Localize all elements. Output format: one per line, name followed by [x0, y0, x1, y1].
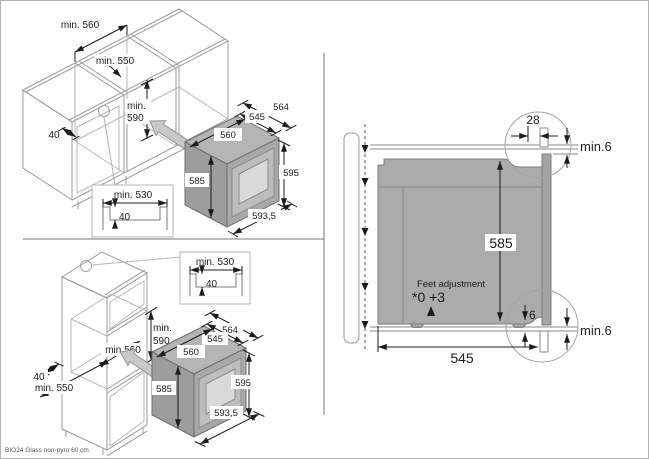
wall: [344, 133, 359, 343]
dim-oven-width: 560: [183, 347, 199, 358]
dim-niche-height-2: 590: [127, 113, 144, 124]
tall-cabinet-section: min. 590 min.560 40 min. 550 min. 530: [31, 252, 264, 456]
leader-line: [92, 257, 180, 265]
cabinet-front-rail-top: [540, 128, 548, 147]
dim-oven-total-depth: 564: [273, 102, 289, 113]
airflow-arrow-icon: [362, 283, 369, 291]
airflow-arrow-icon: [362, 178, 369, 186]
detail-recess-depth: 40: [206, 279, 218, 290]
dim-oven-body-depth: 545: [249, 112, 265, 123]
dim-oven-width: 560: [220, 130, 236, 141]
dim-bottom-clearance: min.6: [580, 323, 612, 338]
installation-manual-page: min. 560 min. 550 min. 590 40 min. 530: [0, 0, 649, 459]
airflow-arrow-icon: [362, 321, 369, 329]
feet-adjustment-values: *0 +3: [412, 289, 445, 305]
installation-diagram: min. 560 min. 550 min. 590 40 min. 530: [0, 0, 649, 459]
dim-top-clearance: min.6: [580, 139, 612, 154]
detail-recess-width: min. 530: [114, 190, 153, 201]
dim-front-overlap-group: 28: [511, 113, 558, 142]
bottom-shelf: [370, 327, 578, 331]
recess-detail-inset: min. 530 40: [92, 185, 173, 237]
cabinet-front-rail-bottom: [540, 331, 548, 352]
dim-front-rail: 40: [48, 130, 60, 141]
oven-front-frame: [542, 154, 551, 325]
leader-circle: [99, 106, 110, 117]
side-view-section: 28 min.6 585 Feet adjustment *0 +3 6: [344, 112, 612, 366]
detail-recess-depth: 40: [119, 212, 131, 223]
dim-oven-depth: 545: [450, 350, 474, 366]
dim-oven-height-side: 585: [189, 176, 205, 187]
dim-niche-depth: min. 550: [96, 56, 135, 67]
dim-niche-depth: min. 550: [35, 383, 74, 394]
dim-niche-height-1: min.: [127, 101, 146, 112]
dim-oven-height: 585: [489, 235, 513, 251]
dim-oven-body-depth: 545: [207, 334, 223, 345]
dim-oven-height-front: 595: [283, 168, 299, 179]
recess-detail-inset: min. 530 40: [180, 252, 250, 304]
dim-niche-width: min. 560: [61, 20, 100, 31]
dim-oven-height-front: 595: [235, 378, 251, 389]
dim-oven-depth-group: 545: [378, 326, 538, 366]
insertion-arrow-icon: [150, 121, 190, 149]
dim-oven-height-side: 585: [156, 384, 172, 395]
dim-top-clearance-group: min.6: [567, 128, 612, 168]
dim-front-overlap: 28: [526, 113, 540, 127]
airflow-arrow-icon: [362, 228, 369, 236]
dim-oven-width-front: 593,5: [214, 408, 238, 419]
airflow-arrow-icon: [362, 145, 369, 153]
leader-line: [104, 117, 115, 185]
dim-oven-width-front: 593,5: [252, 211, 276, 222]
dim-bottom-inset: 6: [529, 308, 536, 322]
base-cabinet-section: min. 560 min. 550 min. 590 40 min. 530: [23, 9, 303, 237]
dim-niche-height-1: min.: [153, 323, 172, 334]
footer-note: BIO24 Glass non-pyro 60 cm: [5, 447, 89, 454]
